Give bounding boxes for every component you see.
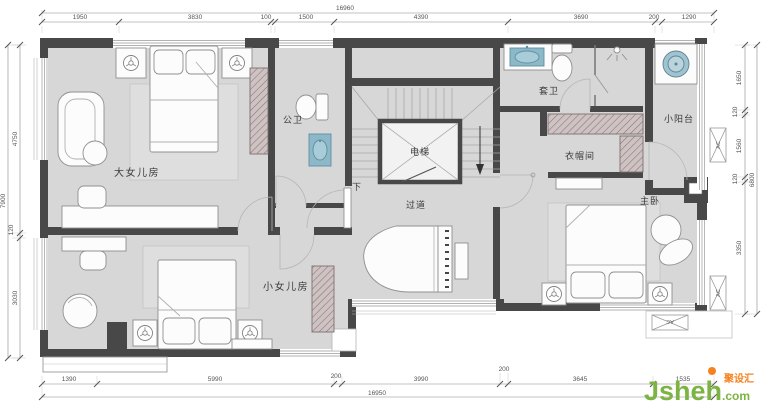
watermark-logo: Jsheh .com 聚设汇 <box>644 367 754 406</box>
dim-right-overall: 6800 <box>749 172 756 187</box>
dim-top-overall: 16960 <box>336 5 354 12</box>
room-label-ensuite-bath: 套卫 <box>539 85 559 96</box>
room-label-balcony: 小阳台 <box>664 113 694 124</box>
round-basin <box>663 51 689 77</box>
dim-right-seg: 120 <box>732 173 739 184</box>
dim-bottom-seg: 200 <box>499 366 510 373</box>
watermark-brand: Jsheh <box>644 376 722 406</box>
dim-bottom-seg: 3990 <box>414 376 429 383</box>
bed-small-daughter <box>158 260 236 349</box>
watermark-cjk: 聚设汇 <box>723 372 754 385</box>
dim-left-overall: 7900 <box>0 193 7 208</box>
dim-top-seg: 4390 <box>414 14 429 21</box>
dim-bottom-seg: 200 <box>331 373 342 380</box>
dim-bottom-seg: 1390 <box>62 376 77 383</box>
dim-left-seg: 4750 <box>12 131 19 146</box>
dim-top-seg: 1950 <box>73 14 88 21</box>
bed-master <box>566 205 646 303</box>
bay-window <box>43 357 167 372</box>
dim-bottom-seg: 5990 <box>208 376 223 383</box>
wardrobe-small-daughter <box>312 266 334 332</box>
wall-stair-left-b <box>345 228 352 235</box>
wall-pillar <box>107 322 127 349</box>
toilet-ensuite <box>552 44 572 81</box>
lamp-icon <box>547 287 562 302</box>
desk-small-daughter <box>62 237 126 251</box>
room-label-small-daughter: 小女儿房 <box>263 280 309 293</box>
floor-plan-page: AC AC AC 大女儿房 小女儿房 公卫 套卫 衣帽间 主卧 小阳台 过道 电… <box>0 0 770 408</box>
room-label-cloakroom: 衣帽间 <box>565 150 595 161</box>
side-table <box>83 141 107 165</box>
dim-left-seg: 3030 <box>12 290 19 305</box>
shower-head-icon <box>614 47 620 53</box>
wardrobe-big-daughter <box>250 68 268 154</box>
wall-stair-top <box>352 78 500 86</box>
closet-top <box>548 114 643 134</box>
grand-piano <box>364 226 468 292</box>
dim-top-seg: 1290 <box>682 14 697 21</box>
ac-label: AC <box>716 289 722 297</box>
dim-right-seg: 1650 <box>736 70 743 85</box>
lamp-icon <box>653 287 668 302</box>
wall-cloakroom-bottom <box>548 172 643 178</box>
dim-right-seg: 1560 <box>736 138 743 153</box>
wall-bath1-bottom-b <box>306 203 346 208</box>
wall-bath1-left <box>268 38 275 203</box>
piano-bench <box>455 243 468 279</box>
floor-plan-drawing: AC AC AC 大女儿房 小女儿房 公卫 套卫 衣帽间 主卧 小阳台 过道 电… <box>0 0 770 408</box>
dim-right-seg: 120 <box>732 106 739 117</box>
desk-big-daughter <box>62 206 218 228</box>
watermark-tld: .com <box>722 389 750 403</box>
dim-top-seg: 3830 <box>188 14 203 21</box>
dim-left-seg: 120 <box>8 224 15 235</box>
wall-ensuite-bottom-b <box>590 106 643 112</box>
wall-cloakroom-left <box>540 112 547 136</box>
dim-right-seg: 3350 <box>736 240 743 255</box>
ac-label: AC <box>716 141 722 149</box>
dim-top-seg: 200 <box>649 14 660 21</box>
chair <box>80 251 106 270</box>
dim-ext-top <box>42 10 714 33</box>
room-label-master: 主卧 <box>640 195 660 206</box>
dim-bottom-seg: 3645 <box>573 376 588 383</box>
dim-top-seg: 3690 <box>574 14 589 21</box>
lamp-icon <box>138 326 153 341</box>
wall-balcony-left-a <box>645 38 653 142</box>
lamp-icon <box>124 56 139 71</box>
lamp-icon <box>230 56 245 71</box>
dim-top-seg: 1500 <box>299 14 314 21</box>
bed-big-daughter <box>150 46 218 152</box>
door-vestibule-leaf <box>344 188 351 228</box>
dim-top-seg: 100 <box>261 14 272 21</box>
sink-public <box>309 134 331 166</box>
swivel-chair <box>63 294 97 328</box>
window-seat-bench <box>232 339 272 349</box>
wall-divider-b <box>272 227 280 235</box>
wall-corridor-right-b <box>493 207 500 303</box>
wall-stair-left-a <box>345 38 352 186</box>
dresser <box>556 178 602 189</box>
room-label-public-bath: 公卫 <box>283 115 303 125</box>
watermark-dot-icon <box>708 367 716 375</box>
stair-down-label: 下 <box>352 182 362 192</box>
window-left-sill-lines <box>34 58 37 330</box>
ac-label: AC <box>666 318 674 324</box>
dim-bottom-overall: 16950 <box>368 390 386 397</box>
chair <box>78 186 106 208</box>
closet-side <box>620 136 643 172</box>
lamp-icon <box>243 326 258 341</box>
dim-ext-left <box>8 45 26 358</box>
room-label-big-daughter: 大女儿房 <box>114 166 160 179</box>
wall-ensuite-bottom-a <box>500 106 560 112</box>
exterior-box <box>332 329 356 351</box>
sink-ensuite <box>510 46 544 66</box>
window-corridor-sill-lines <box>352 311 496 314</box>
room-label-corridor: 过道 <box>406 199 426 210</box>
room-label-elevator: 电梯 <box>410 146 430 157</box>
